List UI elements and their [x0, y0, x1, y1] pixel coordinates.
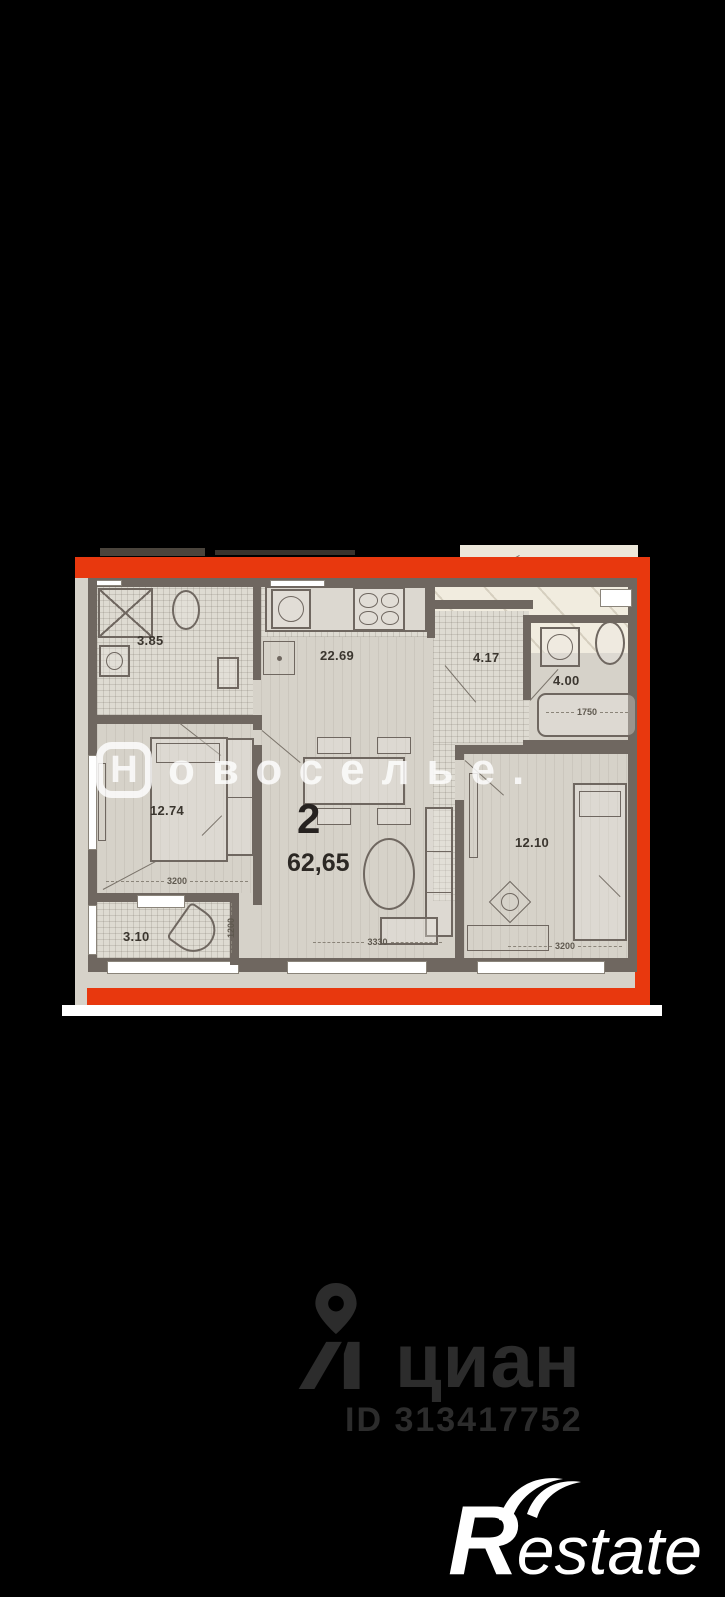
- dim-bedroom-left: 3200: [103, 876, 251, 886]
- plan-top-sliver: [215, 550, 355, 555]
- washer-drum: [106, 652, 123, 670]
- kitchen-sink-bowl: [278, 596, 304, 622]
- toilet-icon: [172, 590, 200, 630]
- dim-bedroom-right: 3200: [505, 941, 625, 951]
- sofa-seg: [427, 851, 451, 852]
- wall-bathroom-right: [253, 578, 261, 680]
- dim-living: 3330: [310, 937, 445, 947]
- dim-label: 3200: [555, 941, 575, 951]
- blanket-fold: [599, 875, 621, 897]
- burner: [359, 611, 378, 626]
- cian-logo-text: циан: [395, 1332, 581, 1391]
- listing-id: ID 313417752: [345, 1401, 583, 1440]
- dim-label: 1200: [226, 918, 236, 938]
- niche: [263, 641, 295, 675]
- blanket-fold: [202, 815, 223, 836]
- chair-icon: [377, 808, 411, 825]
- frame-top: [75, 557, 650, 578]
- sink-bowl: [547, 634, 573, 660]
- frame-right: [635, 557, 650, 1005]
- cian-pin-icon: [295, 1283, 377, 1391]
- sofa-seg: [427, 892, 451, 893]
- balcony-door-panel: [137, 895, 185, 908]
- wall-bedroom-right-left: [455, 800, 464, 958]
- restate-logo: Restate: [448, 1484, 702, 1597]
- wall-hallway-bathroom2: [523, 615, 531, 700]
- bathroom-shelf: [600, 589, 632, 607]
- room-label-bathroom-small: 3.85: [137, 633, 164, 648]
- frame-white-strip: [62, 1005, 662, 1016]
- window-bottom-bedroom: [477, 961, 605, 974]
- wall-hallway-top: [433, 600, 533, 609]
- dim-balcony: 1200: [226, 900, 236, 956]
- pillow: [579, 791, 621, 817]
- window-left-balcony: [88, 905, 97, 955]
- plan-top-sliver: [100, 548, 205, 556]
- restate-text: estate: [517, 1513, 702, 1589]
- kitchen-sink-icon: [271, 589, 311, 629]
- sink-icon: [540, 627, 580, 667]
- room-label-bedroom-left: 12.74: [150, 803, 184, 818]
- bathtub-icon: 1750: [537, 693, 637, 737]
- stove-icon: [353, 587, 405, 631]
- burner: [381, 593, 400, 608]
- bathtub-dim: 1750: [543, 707, 631, 717]
- room-label-balcony: 3.10: [123, 929, 150, 944]
- room-label-hallway: 4.17: [473, 650, 500, 665]
- listing-photo-page: { "background_color": "#000000", "plan":…: [0, 0, 725, 1572]
- niche-dot: [277, 656, 282, 661]
- novoselye-watermark: Н овоселье.: [96, 737, 541, 803]
- window-bottom-living: [287, 961, 427, 974]
- shower-icon: [98, 588, 153, 638]
- cian-watermark: циан ID 313417752: [295, 1283, 583, 1440]
- dim-label: 3330: [367, 937, 387, 947]
- rug-icon: [363, 838, 415, 910]
- novoselye-boxed-letter: Н: [96, 742, 152, 798]
- chair-icon: [317, 808, 351, 825]
- chair-seat: [497, 889, 522, 914]
- burner: [381, 611, 400, 626]
- bed-icon: [573, 783, 627, 941]
- burner: [359, 593, 378, 608]
- toilet-icon: [595, 621, 625, 665]
- rooms-count-label: 2: [297, 798, 320, 840]
- wall-bedroom-left-divider: [253, 715, 262, 730]
- novoselye-text: овоселье.: [168, 745, 541, 795]
- dim-label: 3200: [167, 876, 187, 886]
- wall-bathroom2-top: [530, 615, 637, 623]
- wall-right: [628, 578, 637, 968]
- restate-initial: R: [448, 1485, 517, 1595]
- dim-label: 1750: [577, 707, 597, 717]
- washing-machine-icon: [99, 645, 130, 677]
- room-label-bedroom-right: 12.10: [515, 835, 549, 850]
- total-area-label: 62,65: [287, 851, 350, 876]
- wall-bathroom-bottom: [88, 715, 261, 724]
- room-label-bathroom: 4.00: [553, 673, 580, 688]
- sink-icon: [217, 657, 239, 689]
- room-hallway-floor: [433, 611, 529, 743]
- cian-logo-row: циан: [295, 1283, 583, 1391]
- frame-bottom: [87, 988, 650, 1005]
- window-bottom-balcony: [107, 961, 239, 974]
- room-label-kitchen-living: 22.69: [320, 648, 354, 663]
